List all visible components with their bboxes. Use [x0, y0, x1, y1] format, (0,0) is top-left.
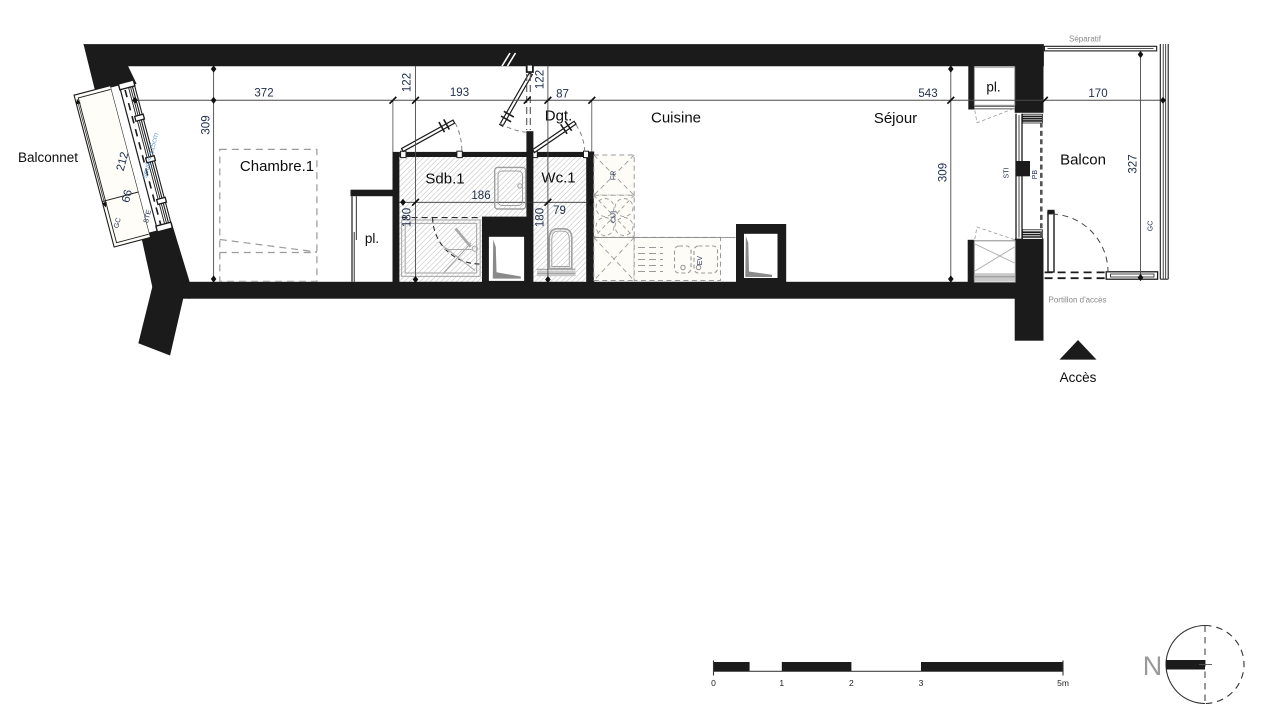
svg-text:372: 372 — [254, 88, 273, 100]
svg-text:pl.: pl. — [365, 231, 379, 246]
svg-text:180: 180 — [535, 208, 547, 227]
svg-text:EV: EV — [697, 256, 704, 266]
svg-text:GC: GC — [1148, 221, 1155, 232]
svg-text:122: 122 — [535, 70, 547, 89]
svg-text:0: 0 — [711, 678, 716, 688]
svg-text:Séjour: Séjour — [874, 110, 917, 127]
svg-text:170: 170 — [1088, 88, 1107, 100]
svg-text:309: 309 — [201, 115, 213, 134]
svg-text:Chambre.1: Chambre.1 — [240, 158, 314, 175]
svg-text:3: 3 — [919, 678, 924, 688]
svg-text:FR: FR — [611, 171, 618, 180]
svg-text:Séparatif: Séparatif — [1069, 35, 1102, 44]
svg-text:186: 186 — [471, 190, 490, 202]
svg-text:N: N — [1143, 651, 1163, 681]
svg-text:180: 180 — [402, 208, 414, 227]
svg-text:5m: 5m — [1057, 678, 1069, 688]
svg-text:87: 87 — [556, 89, 569, 101]
svg-text:Portillon d'accès: Portillon d'accès — [1049, 296, 1107, 305]
svg-text:309: 309 — [938, 163, 950, 182]
svg-text:Dgt.: Dgt. — [545, 108, 573, 125]
svg-text:PB: PB — [1032, 170, 1039, 180]
svg-text:Sdb.1: Sdb.1 — [425, 171, 464, 188]
svg-text:193: 193 — [450, 87, 469, 99]
svg-text:Wc.1: Wc.1 — [541, 170, 575, 187]
svg-text:Balcon: Balcon — [1060, 152, 1106, 169]
svg-text:STI: STI — [1004, 168, 1011, 179]
svg-text:327: 327 — [1128, 154, 1140, 173]
svg-text:2: 2 — [849, 678, 854, 688]
svg-text:Balconnet: Balconnet — [18, 150, 78, 165]
svg-text:1: 1 — [779, 678, 784, 688]
svg-text:pl.: pl. — [986, 80, 1000, 95]
svg-text:Cuisine: Cuisine — [651, 110, 701, 127]
svg-text:122: 122 — [402, 73, 414, 92]
svg-text:CUI: CUI — [611, 211, 618, 223]
svg-text:Accès: Accès — [1060, 370, 1097, 385]
svg-text:543: 543 — [918, 88, 937, 100]
svg-text:79: 79 — [553, 205, 566, 217]
